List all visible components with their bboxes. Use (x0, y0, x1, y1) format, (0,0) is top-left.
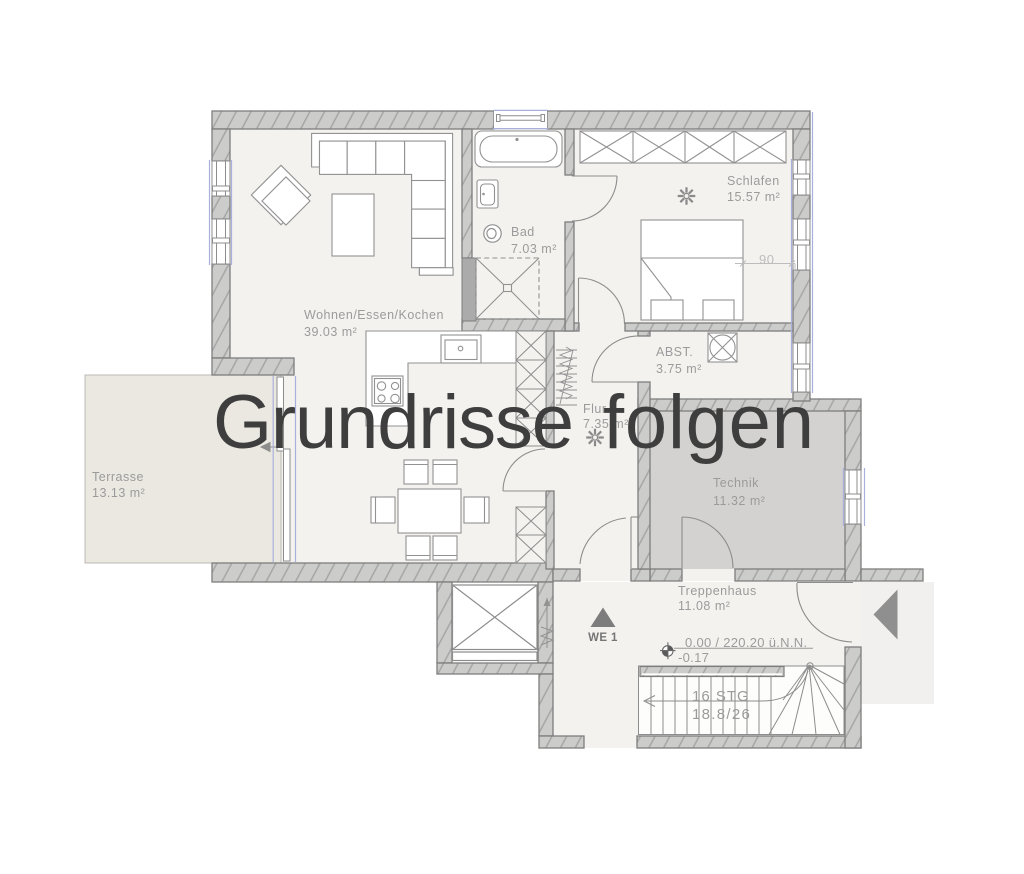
svg-text:Technik: Technik (713, 476, 759, 490)
svg-text:15.57 m²: 15.57 m² (727, 190, 780, 204)
svg-text:Terrasse: Terrasse (92, 470, 144, 484)
svg-text:0.00 / 220.20 ü.N.N.: 0.00 / 220.20 ü.N.N. (685, 635, 807, 650)
svg-text:11.32 m²: 11.32 m² (713, 494, 765, 508)
svg-text:7.03 m²: 7.03 m² (511, 242, 557, 256)
svg-text:Wohnen/Essen/Kochen: Wohnen/Essen/Kochen (304, 308, 444, 322)
svg-text:3.75 m²: 3.75 m² (656, 362, 702, 376)
svg-text:folgen: folgen (603, 380, 814, 465)
svg-text:90: 90 (759, 252, 774, 267)
svg-text:16 STG: 16 STG (692, 688, 750, 705)
svg-text:18.8/26: 18.8/26 (692, 706, 751, 723)
svg-text:Treppenhaus: Treppenhaus (678, 584, 757, 598)
svg-text:Schlafen: Schlafen (727, 174, 780, 188)
svg-text:ABST.: ABST. (656, 345, 693, 359)
svg-text:-0.17: -0.17 (678, 650, 709, 665)
svg-text:Bad: Bad (511, 225, 535, 239)
svg-text:Grundrisse: Grundrisse (213, 380, 574, 465)
svg-text:13.13 m²: 13.13 m² (92, 486, 145, 500)
svg-text:WE 1: WE 1 (588, 632, 618, 644)
svg-text:39.03 m²: 39.03 m² (304, 325, 357, 339)
svg-text:11.08 m²: 11.08 m² (678, 599, 730, 613)
